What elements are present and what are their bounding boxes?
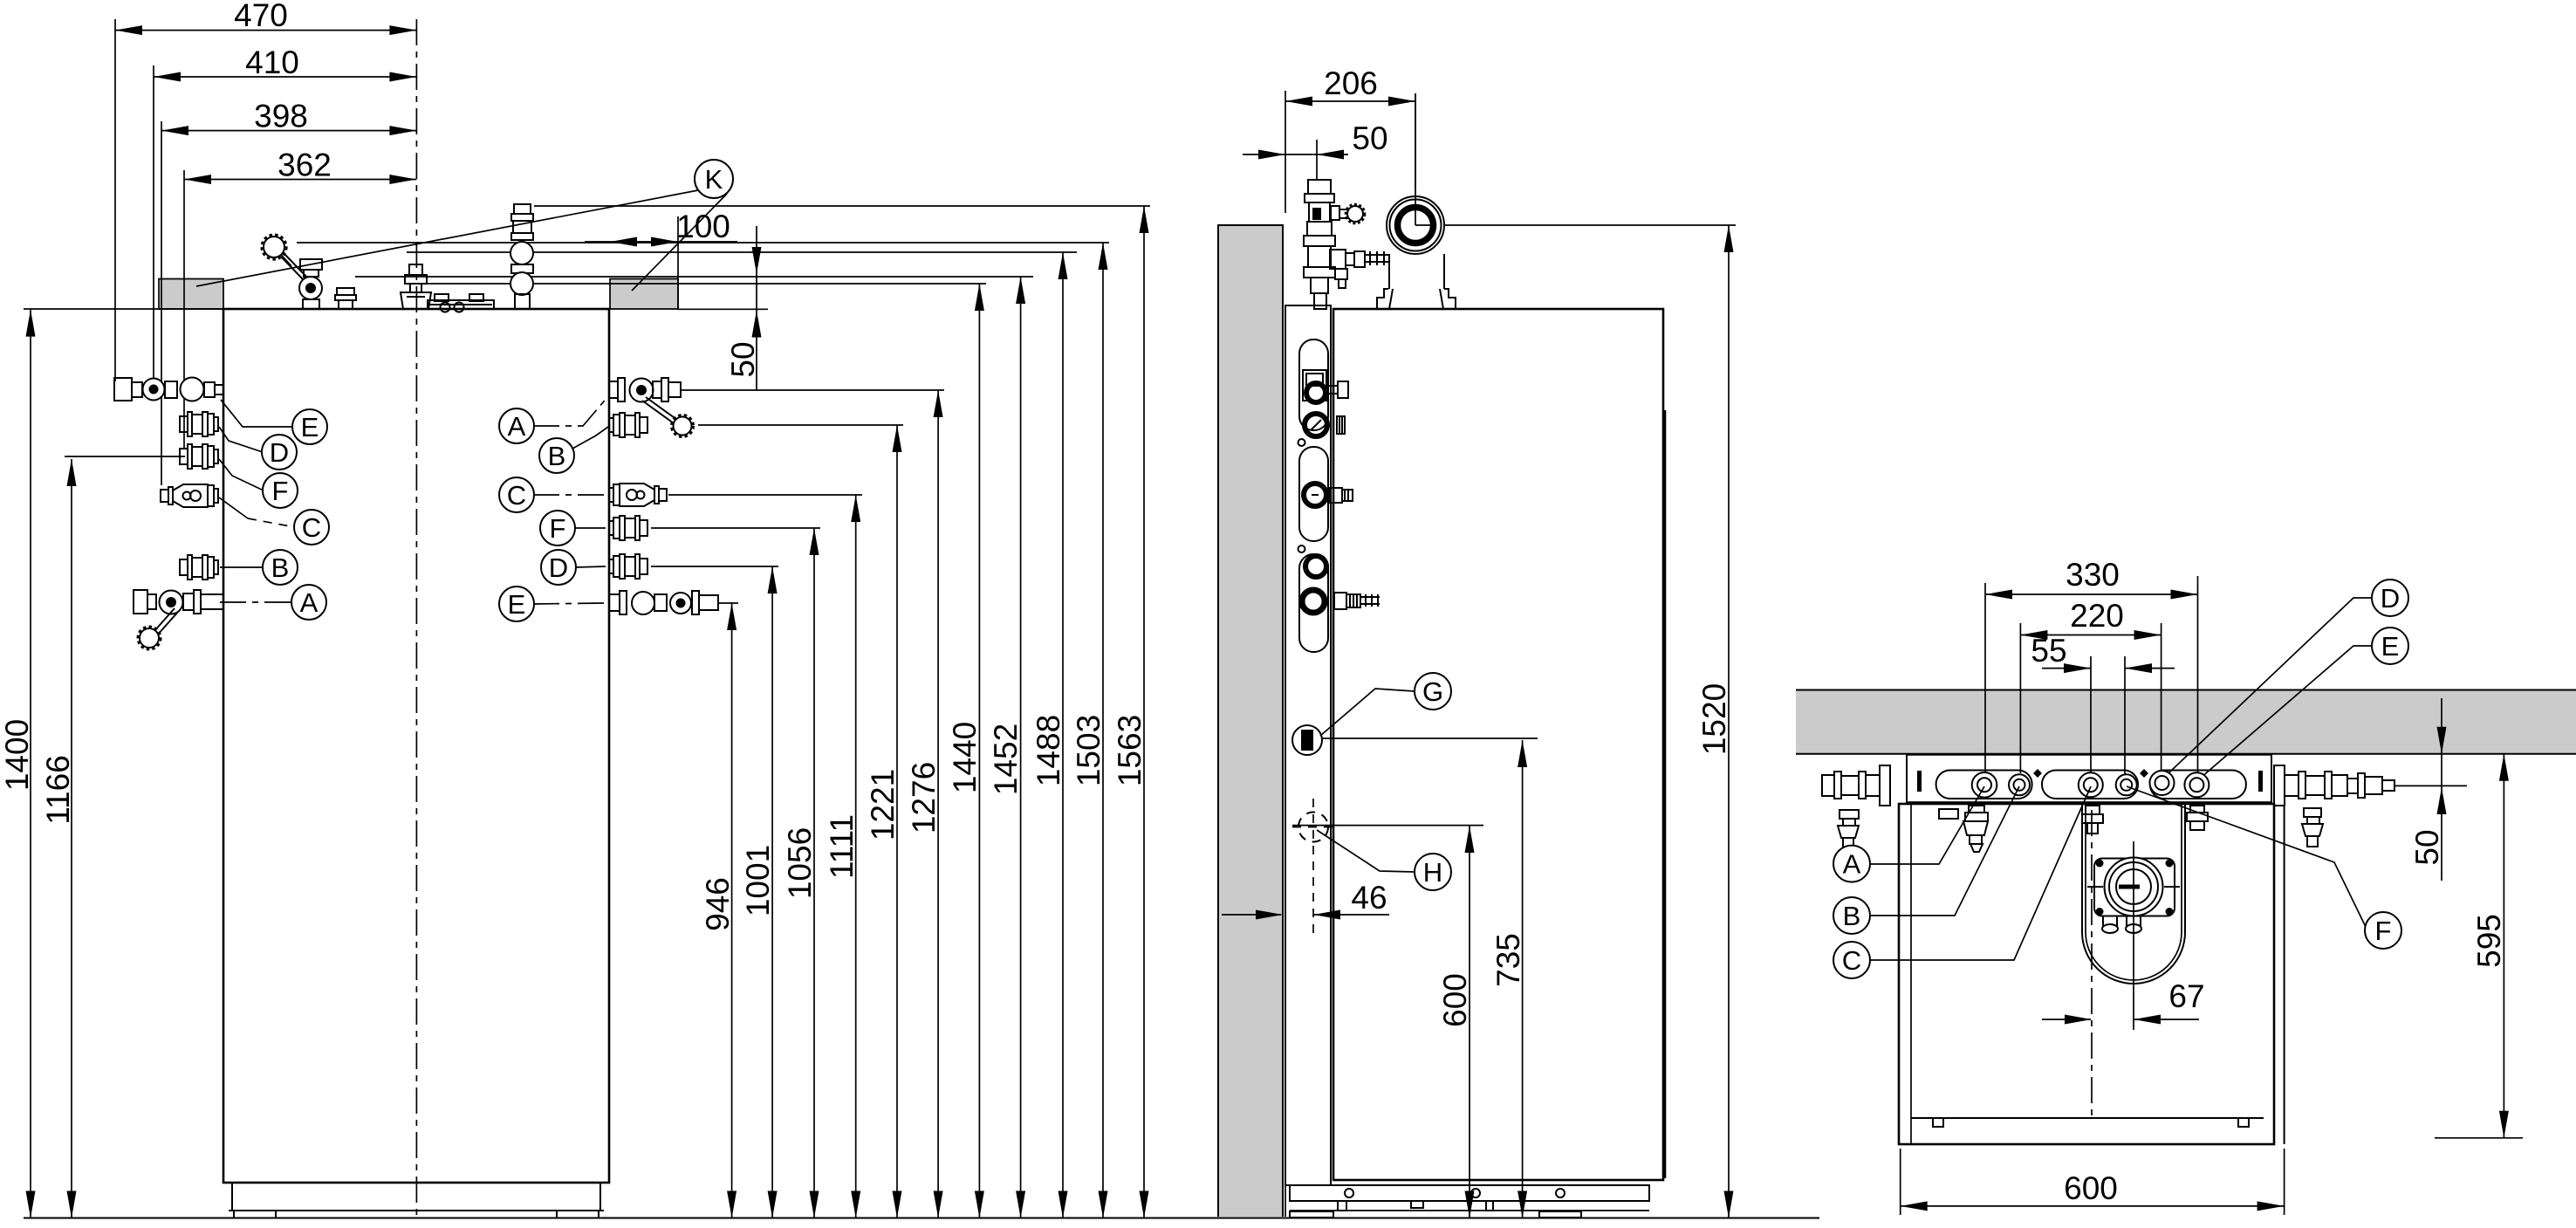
svg-text:1488: 1488 bbox=[1031, 715, 1066, 786]
svg-text:1276: 1276 bbox=[906, 762, 942, 834]
svg-text:46: 46 bbox=[1351, 880, 1387, 916]
svg-text:H: H bbox=[1423, 857, 1442, 888]
svg-text:50: 50 bbox=[725, 341, 761, 377]
svg-text:410: 410 bbox=[245, 45, 299, 80]
svg-text:595: 595 bbox=[2471, 914, 2507, 968]
svg-text:D: D bbox=[270, 437, 289, 468]
svg-text:F: F bbox=[550, 513, 566, 544]
svg-text:F: F bbox=[272, 476, 289, 506]
svg-text:C: C bbox=[1842, 945, 1861, 976]
svg-text:1503: 1503 bbox=[1071, 715, 1106, 786]
svg-text:50: 50 bbox=[2409, 829, 2445, 865]
svg-text:1166: 1166 bbox=[40, 755, 76, 825]
svg-text:A: A bbox=[508, 411, 526, 442]
svg-text:1400: 1400 bbox=[0, 719, 35, 791]
svg-text:206: 206 bbox=[1324, 65, 1378, 101]
svg-text:E: E bbox=[301, 412, 319, 442]
svg-text:735: 735 bbox=[1490, 933, 1526, 987]
svg-text:E: E bbox=[2381, 631, 2400, 662]
svg-text:1563: 1563 bbox=[1112, 715, 1148, 786]
svg-text:1440: 1440 bbox=[947, 722, 983, 793]
svg-text:1001: 1001 bbox=[740, 845, 776, 916]
svg-text:K: K bbox=[705, 164, 723, 195]
svg-text:D: D bbox=[549, 552, 568, 583]
svg-text:1221: 1221 bbox=[865, 769, 901, 840]
svg-text:398: 398 bbox=[254, 99, 308, 134]
svg-text:G: G bbox=[1422, 676, 1443, 707]
svg-text:50: 50 bbox=[1352, 120, 1387, 156]
svg-text:220: 220 bbox=[2070, 598, 2124, 634]
svg-text:F: F bbox=[2375, 916, 2392, 946]
svg-text:1111: 1111 bbox=[824, 814, 860, 879]
svg-text:D: D bbox=[2381, 583, 2400, 614]
svg-text:600: 600 bbox=[1437, 973, 1473, 1027]
svg-text:1056: 1056 bbox=[782, 827, 818, 899]
svg-text:1520: 1520 bbox=[1696, 683, 1732, 755]
svg-text:470: 470 bbox=[234, 0, 288, 33]
svg-text:B: B bbox=[1843, 901, 1861, 931]
svg-text:C: C bbox=[302, 512, 321, 543]
svg-text:A: A bbox=[1843, 849, 1861, 880]
svg-text:C: C bbox=[507, 480, 526, 511]
svg-text:55: 55 bbox=[2031, 633, 2066, 669]
svg-text:E: E bbox=[508, 589, 526, 620]
svg-text:A: A bbox=[300, 587, 319, 618]
svg-text:B: B bbox=[548, 441, 566, 471]
svg-text:946: 946 bbox=[700, 877, 736, 931]
svg-text:100: 100 bbox=[676, 209, 730, 244]
svg-text:330: 330 bbox=[2066, 557, 2120, 593]
svg-text:B: B bbox=[271, 552, 290, 583]
svg-text:67: 67 bbox=[2168, 978, 2204, 1014]
svg-text:600: 600 bbox=[2064, 1170, 2118, 1206]
svg-text:362: 362 bbox=[277, 147, 332, 183]
svg-text:1452: 1452 bbox=[988, 724, 1024, 795]
